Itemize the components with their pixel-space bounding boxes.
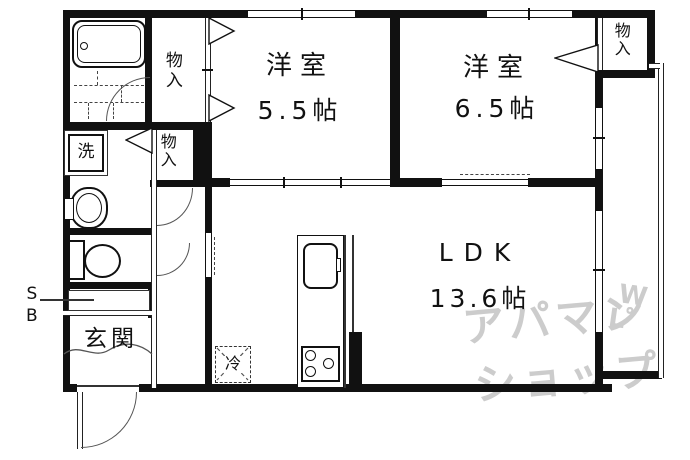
sliding-room1-tick-b [340,177,342,188]
wall-65-south-left [390,178,442,187]
watermark-logo-mark: W L゜ [607,281,656,336]
balcony-rail-right [658,63,664,378]
watermark-mark-dot: ゜ [623,305,653,338]
kitchen-counter-edge-line [344,235,346,388]
sliding-door-hall-dash [214,237,215,275]
closet3-bottom-wall [595,70,655,78]
fridge-box: 冷 [215,346,251,383]
toilet-bowl [84,244,121,278]
closet2-east-wall [193,125,212,187]
shoebox-shelf [68,290,150,311]
fridge-label: 冷 [224,356,242,373]
ldk-size: 13.6帖 [405,286,555,312]
wall-room-divider [390,18,400,186]
stove-burner-3 [305,366,316,377]
bath-door-arc [106,77,150,121]
washbasin-counter [64,198,74,220]
stove-burner-1 [305,350,316,361]
kitchen-sink-icon [303,243,338,289]
room2-size: 6.5帖 [427,96,567,122]
bath-tile-dash-3 [88,103,89,119]
wall-right-mid [595,169,603,211]
closet2-door-triangle [125,127,153,154]
kitchen-sink-tab [336,258,341,272]
window-right-room2-tick [593,137,605,139]
balcony-door-window [595,211,603,332]
bath-tile-dash-1 [97,71,98,85]
closet1-door-triangle-top [208,17,236,45]
sliding-door-room2-dash [460,174,530,175]
window-top-room2 [487,10,572,18]
closet2-label: 物入 [158,133,175,169]
sliding-room1-tick-a [283,177,285,188]
kitchen-wall-stub [349,332,362,392]
ldk-name: LDK [410,240,550,266]
wall-hall-east-lower [205,277,212,392]
wall-hall-east-upper [205,187,212,233]
floor-plan: アパマン ショップ W L゜ [0,0,690,460]
entrance-label: 玄関 [70,327,152,351]
sliding-door-room2-ldk [442,179,528,186]
washbasin-inner [76,193,102,223]
shoebox-leader-line [40,299,94,301]
room2-name: 洋室 [427,55,567,82]
toilet-door-arc [157,243,190,276]
wall-bottom-left-stub [63,384,77,392]
balcony-bottom-wall [600,371,662,379]
washer-box: 洗 [68,134,104,172]
bathtub-drain [80,42,88,50]
washroom-door-arc [157,188,193,226]
shoebox-label: SB [22,284,40,328]
window-top-room2-tick [528,8,530,20]
kitchen-counter-inner-line [352,235,354,332]
closet1-door-split-tick [202,69,213,71]
wall-toilet-south [63,282,152,289]
window-top-room1-tick [301,8,303,20]
entry-door-arc [81,392,137,448]
sliding-door-hall-ldk [205,233,212,277]
stove-burner-2 [323,358,334,369]
closet3-label: 物入 [612,22,629,58]
toilet-tank [68,240,85,280]
entry-threshold-line [77,385,139,387]
window-right-room2 [595,108,603,169]
wall-65-south-right [528,178,603,187]
room1-size: 5.5帖 [230,98,370,124]
balcony-door-tick [593,269,605,271]
balcony-rail-top [649,63,660,69]
closet1-label: 物入 [162,51,180,91]
washer-label: 洗 [78,144,95,162]
wall-washroom-south [63,228,156,235]
wall-right-lower [595,332,603,392]
sliding-opening-room1-ldk [230,179,390,186]
room1-name: 洋室 [230,53,370,80]
